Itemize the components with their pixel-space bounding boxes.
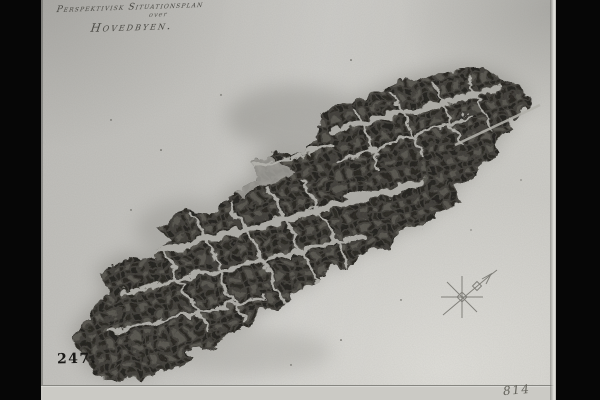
town-plan-drawing [41, 0, 556, 400]
photo-bottom-edge [41, 385, 556, 400]
photo-paper: Perspektivisk Situationsplan over Hovedb… [41, 0, 556, 400]
plate-number: 814 [502, 382, 531, 398]
photograph-of-town-plan: Perspektivisk Situationsplan over Hovedb… [0, 0, 600, 400]
catalog-number: 247. [57, 351, 97, 368]
letterbox-right [556, 0, 600, 400]
letterbox-left [0, 0, 41, 400]
